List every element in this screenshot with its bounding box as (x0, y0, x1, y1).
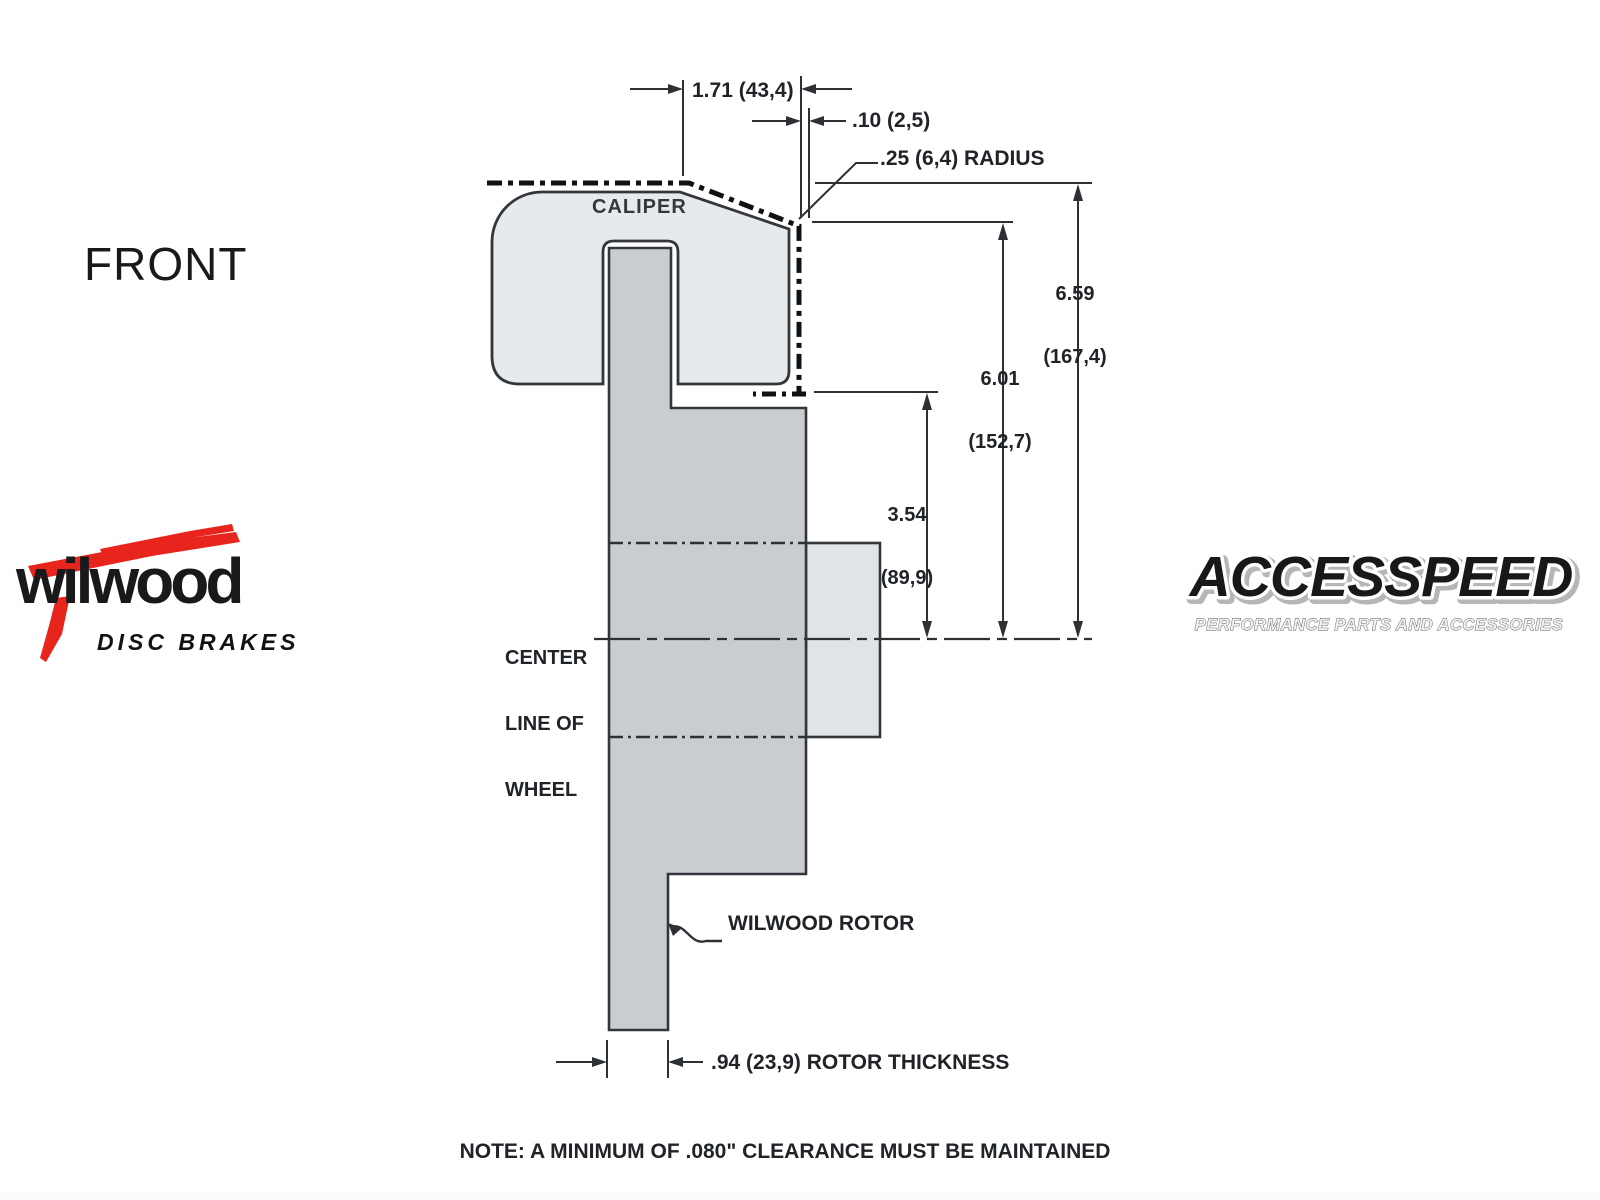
dim-354: 3.54 (89,9) (881, 463, 933, 631)
dim-354-mm: (89,9) (881, 568, 933, 589)
page-bottom-strip (0, 1192, 1600, 1200)
centerline-label: CENTER LINE OF WHEEL (505, 603, 587, 845)
accesspeed-tagline: PERFORMANCE PARTS AND ACCESSORIES (1195, 616, 1564, 634)
wilwood-tagline: DISC BRAKES (97, 630, 299, 654)
accesspeed-logo: ACCESSPEED ACCESSPEED PERFORMANCE PARTS … (1188, 545, 1576, 634)
dim-caliper-overhang: 1.71 (43,4) (692, 80, 794, 102)
dim-rotor-thickness: .94 (23,9) ROTOR THICKNESS (711, 1052, 1009, 1074)
dim-354-in: 3.54 (881, 505, 933, 526)
dim-659: 6.59 (167,4) (1043, 242, 1106, 410)
dim-corner-radius: .25 (6,4) RADIUS (880, 148, 1045, 170)
rotor-callout: WILWOOD ROTOR (728, 913, 914, 935)
centerline-label-1: CENTER (505, 647, 587, 669)
centerline-label-3: WHEEL (505, 779, 587, 801)
centerline-label-2: LINE OF (505, 713, 587, 735)
accesspeed-wordmark: ACCESSPEED (1188, 545, 1573, 609)
dim-wheel-clearance: .10 (2,5) (852, 110, 930, 132)
wilwood-wordmark: wilwood (16, 548, 240, 615)
radius-leader-line (799, 163, 878, 219)
dim-601: 6.01 (152,7) (968, 327, 1031, 495)
dim-601-in: 6.01 (968, 369, 1031, 390)
dim-659-mm: (167,4) (1043, 347, 1106, 368)
dim-659-in: 6.59 (1043, 284, 1106, 305)
rotor-leader-line (668, 923, 722, 942)
brake-diagram-page: ACCESSPEED ACCESSPEED PERFORMANCE PARTS … (0, 0, 1600, 1200)
dim-wheel-clearance-lines (752, 108, 846, 218)
dim-rotor-thickness-lines (556, 1040, 703, 1078)
clearance-note: NOTE: A MINIMUM OF .080" CLEARANCE MUST … (460, 1092, 1111, 1200)
caliper-label: CALIPER (592, 197, 687, 218)
clearance-note-line1: NOTE: A MINIMUM OF .080" CLEARANCE MUST … (460, 1140, 1111, 1164)
view-label: FRONT (84, 240, 247, 288)
dim-601-mm: (152,7) (968, 432, 1031, 453)
